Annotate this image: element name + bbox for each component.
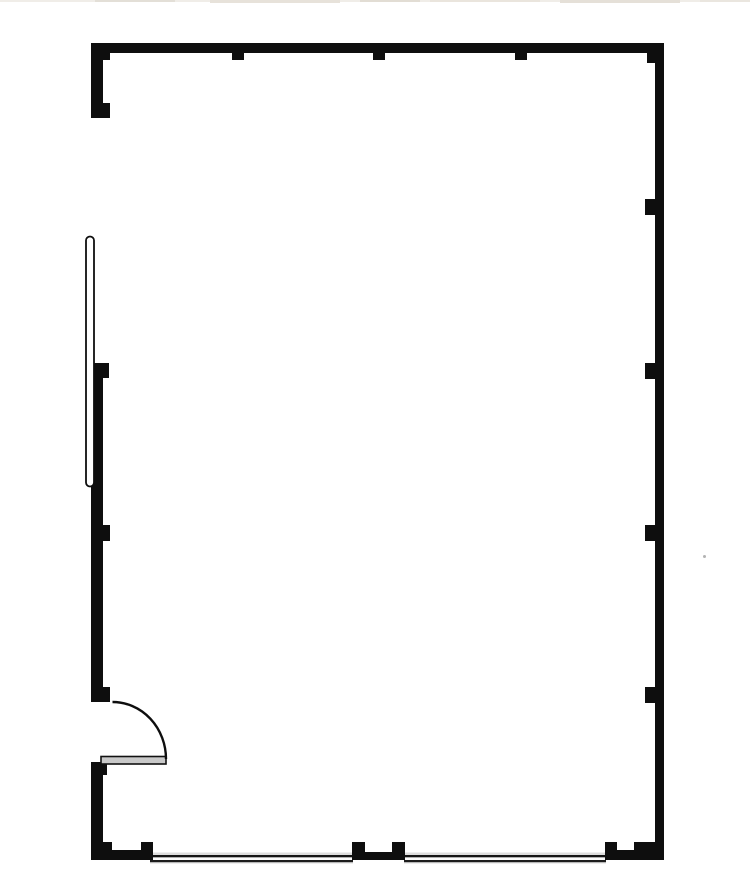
pilaster-17 <box>352 842 365 855</box>
pilaster-14 <box>645 525 664 541</box>
floor-plan-svg <box>0 0 750 896</box>
pilaster-2 <box>373 53 385 60</box>
pilaster-10 <box>91 842 112 860</box>
door-leaf <box>101 757 166 765</box>
top-edge-artifact-3 <box>360 0 420 2</box>
top-edge-artifact-4 <box>430 0 540 2</box>
bottom-window-right-1 <box>404 855 606 857</box>
pilaster-18 <box>392 842 405 855</box>
pilaster-8 <box>91 687 110 702</box>
pilaster-4 <box>647 53 655 63</box>
bottom-window-right-2 <box>404 857 606 860</box>
pilaster-15 <box>645 687 664 703</box>
pilaster-3 <box>515 53 527 60</box>
pilaster-11 <box>141 842 153 854</box>
wall-segment-0 <box>91 43 664 53</box>
pilaster-13 <box>645 363 664 379</box>
wall-speck <box>703 555 706 558</box>
pilaster-5 <box>91 103 110 118</box>
floor-plan-canvas <box>0 0 750 896</box>
top-edge-artifact-2 <box>210 0 340 3</box>
top-edge-artifact-5 <box>560 0 680 3</box>
bottom-window-left-1 <box>150 855 353 857</box>
pilaster-19 <box>605 842 617 854</box>
top-edge-artifact-6 <box>700 0 750 2</box>
bottom-window-left-3 <box>150 860 353 862</box>
bottom-window-left-2 <box>150 857 353 860</box>
wall-segment-1 <box>655 43 664 860</box>
pilaster-0 <box>102 53 110 60</box>
door-swing-arc <box>113 702 167 759</box>
pilaster-20 <box>634 842 647 854</box>
top-edge-artifact-1 <box>95 0 175 2</box>
pilaster-7 <box>91 525 110 541</box>
bottom-window-right-3 <box>404 860 606 862</box>
pilaster-16 <box>645 842 664 860</box>
pilaster-12 <box>645 199 664 215</box>
left-sliding-panel <box>86 237 94 487</box>
pilaster-1 <box>232 53 244 60</box>
